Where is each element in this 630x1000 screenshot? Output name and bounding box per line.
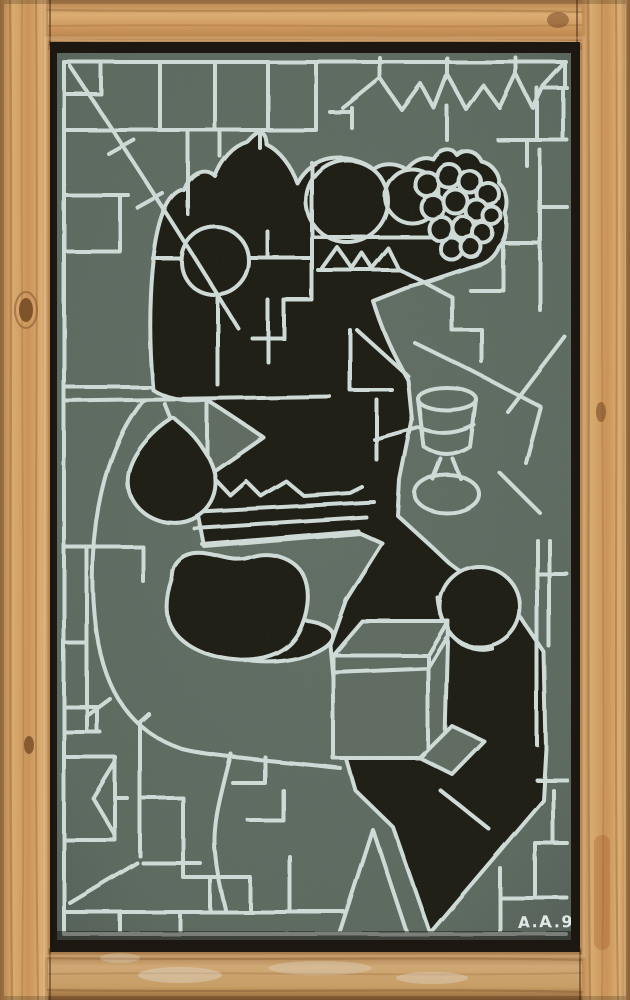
panel-bottom-edge-shadow	[57, 931, 571, 940]
painting-photo: A.A.95	[0, 0, 630, 1000]
artwork-photo: A.A.95	[0, 0, 630, 1000]
canvas-texture-overlay	[57, 53, 571, 940]
